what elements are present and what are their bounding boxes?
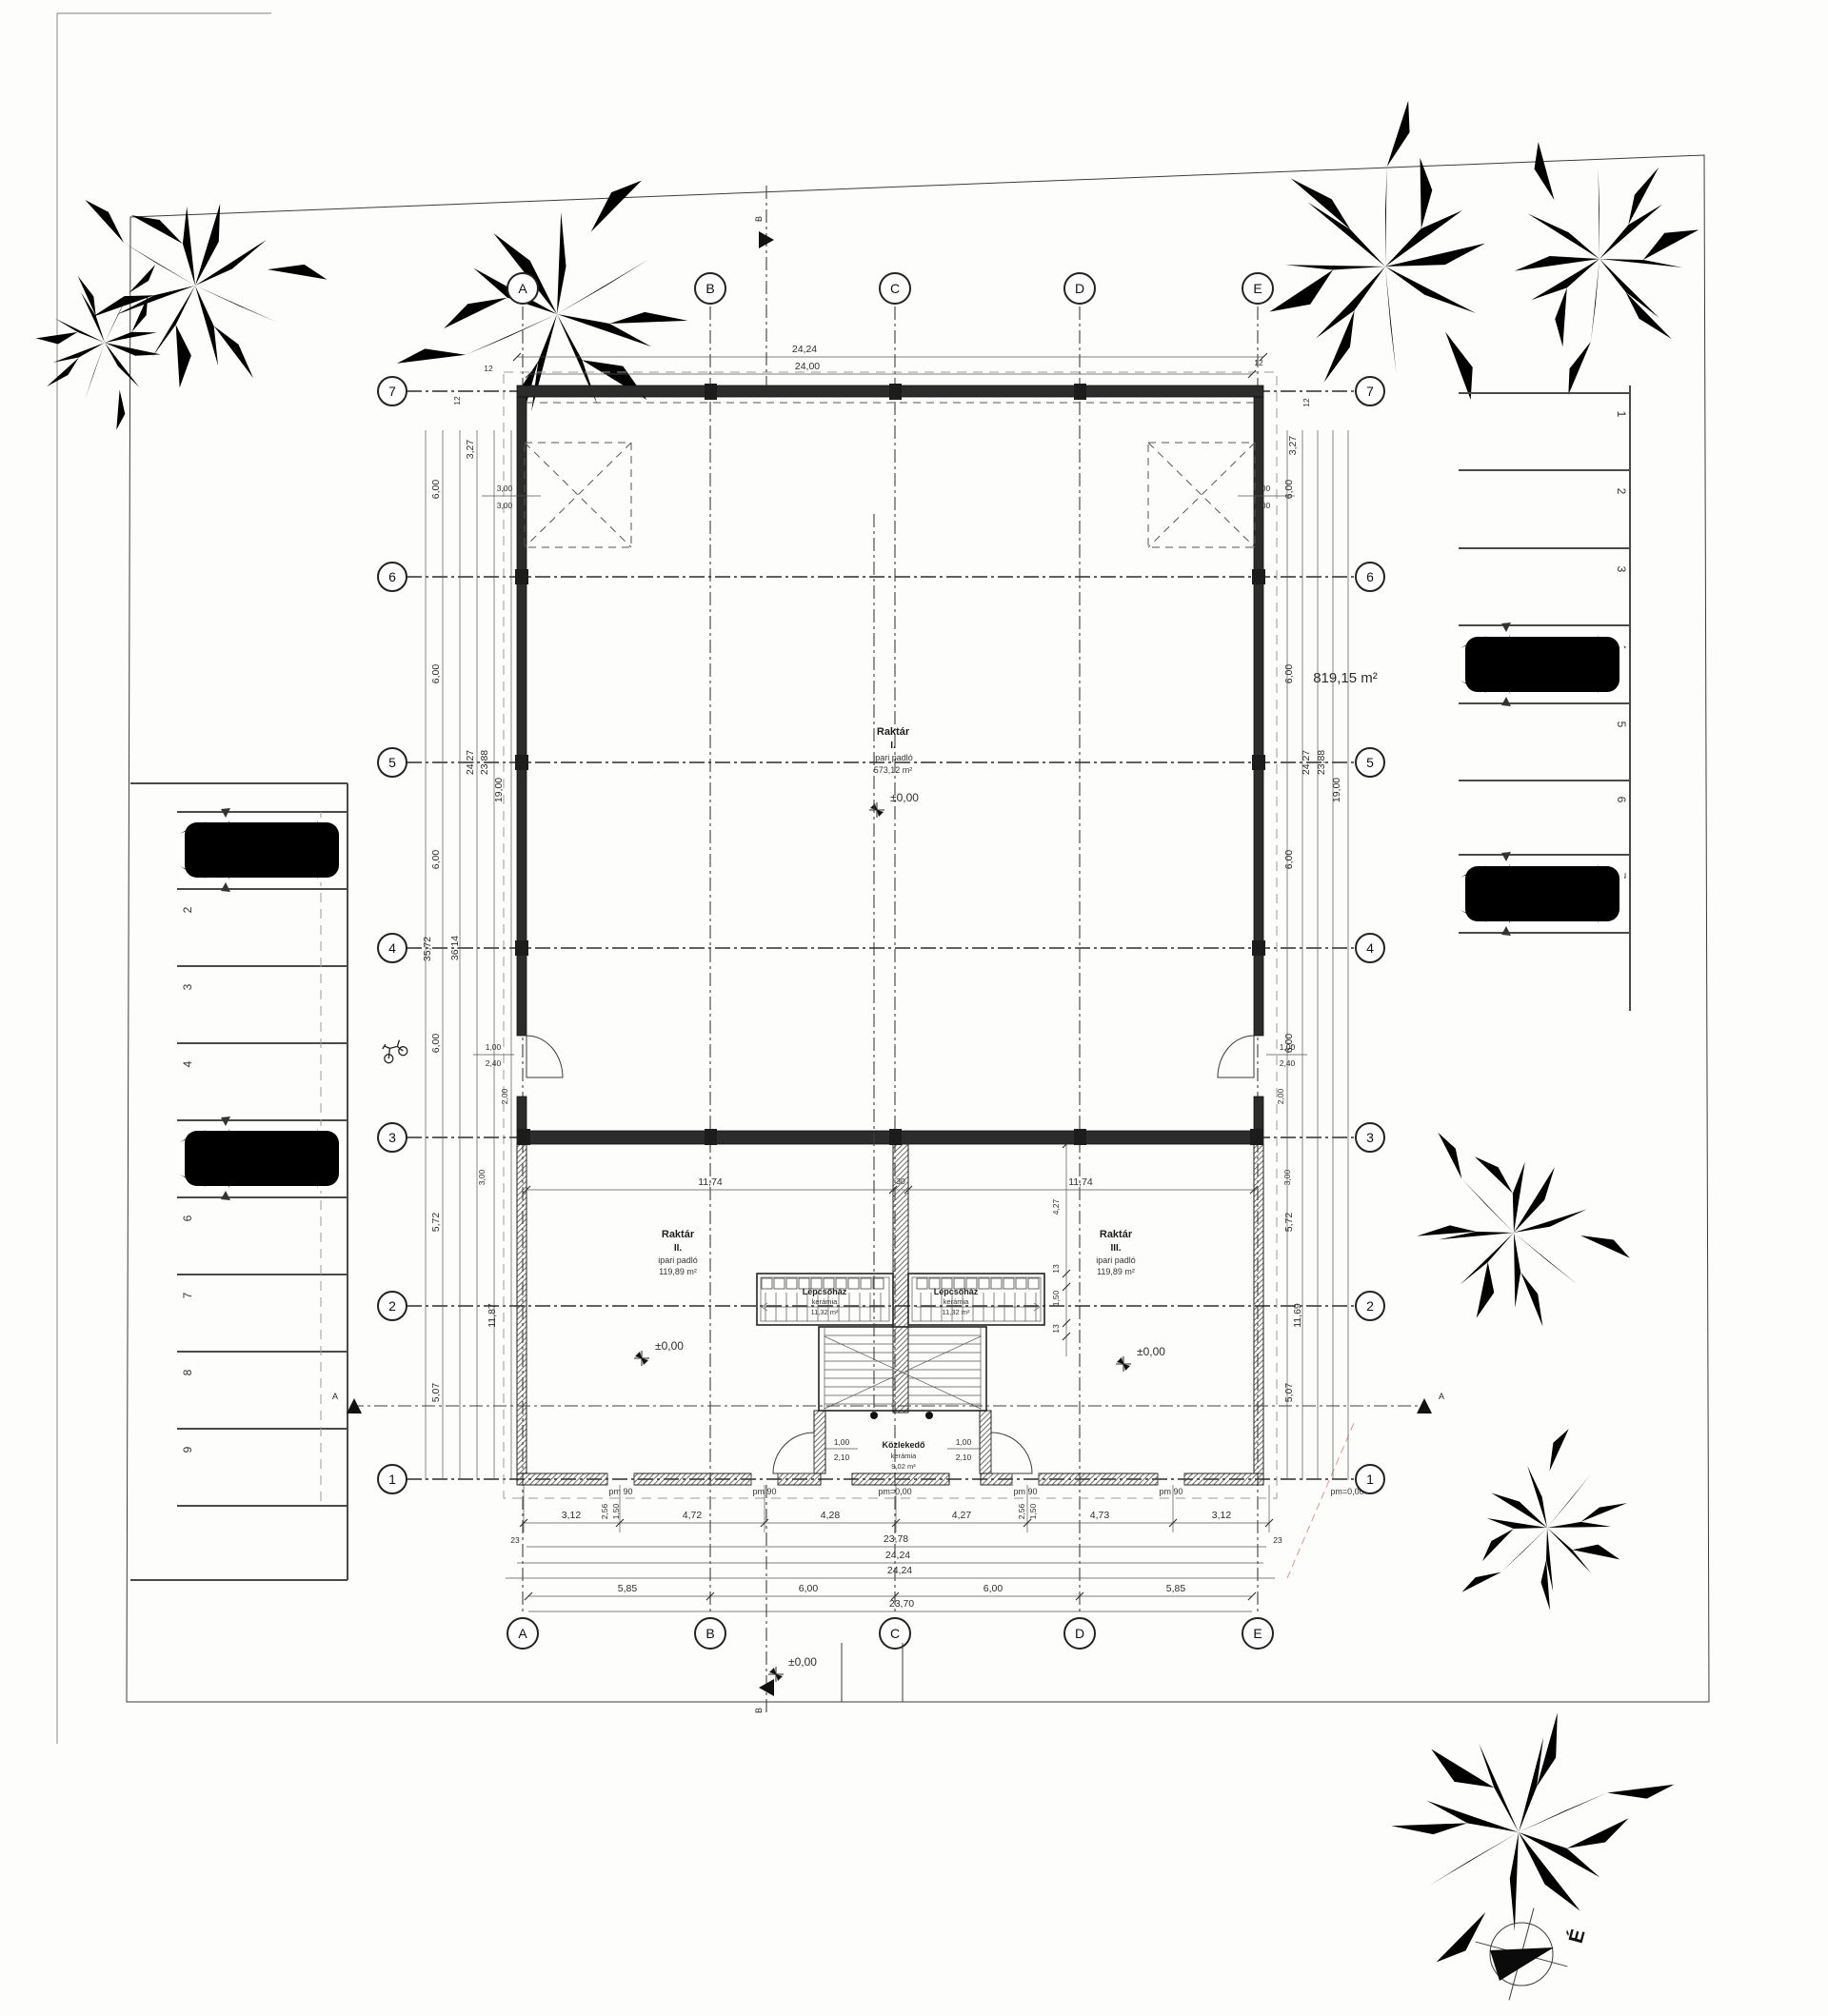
svg-text:4,72: 4,72: [683, 1510, 703, 1521]
svg-text:B: B: [754, 216, 764, 222]
svg-text:6,00: 6,00: [984, 1583, 1003, 1594]
room-finish: ipari padló: [1096, 1255, 1136, 1265]
svg-text:3,00: 3,00: [1255, 501, 1271, 510]
svg-text:2,56: 2,56: [1017, 1503, 1026, 1519]
parking-stall-number: 4: [181, 1060, 194, 1067]
svg-text:2: 2: [388, 1298, 396, 1314]
columns: [515, 384, 1265, 1145]
svg-text:36,14: 36,14: [449, 936, 461, 960]
tree-icon: [42, 142, 346, 425]
svg-text:A: A: [518, 281, 527, 296]
svg-text:pm 90: pm 90: [608, 1487, 632, 1496]
stair-area: 11,32 m²: [942, 1308, 970, 1316]
svg-text:5,07: 5,07: [1283, 1383, 1295, 1403]
entrance-walkway: [842, 1643, 903, 1702]
svg-text:6,00: 6,00: [430, 480, 442, 500]
level-label: ±0,00: [890, 791, 919, 804]
corridor-name: Közlekedő: [882, 1440, 925, 1450]
room-name: Raktár: [877, 726, 910, 738]
svg-text:23,70: 23,70: [889, 1598, 914, 1610]
level-label: ±0,00: [655, 1339, 684, 1353]
svg-text:2,10: 2,10: [834, 1453, 850, 1462]
svg-text:1,50: 1,50: [611, 1503, 621, 1519]
corridor-area: 9,02 m²: [891, 1462, 916, 1471]
svg-text:1,00: 1,00: [1280, 1042, 1296, 1052]
svg-text:23,78: 23,78: [884, 1533, 908, 1545]
svg-text:pm 90: pm 90: [1013, 1487, 1037, 1496]
stair-name: Lépcsőház: [803, 1287, 847, 1296]
svg-text:3: 3: [388, 1130, 396, 1145]
svg-text:2,40: 2,40: [1280, 1058, 1296, 1068]
building-walls: [515, 384, 1265, 1485]
svg-text:A: A: [332, 1392, 338, 1401]
room-finish: ipari padló: [658, 1255, 698, 1265]
svg-text:11,69: 11,69: [1292, 1303, 1303, 1328]
svg-text:30: 30: [896, 1176, 905, 1186]
car-icon: [1460, 852, 1624, 936]
svg-text:A: A: [518, 1626, 527, 1641]
level-marker-icon: [768, 1667, 784, 1682]
stair-core: [527, 1036, 1254, 1485]
site-area-label: 819,15 m²: [1313, 670, 1378, 686]
svg-text:E: E: [1253, 281, 1262, 296]
svg-text:11,74: 11,74: [1068, 1176, 1093, 1188]
svg-text:3,00: 3,00: [497, 484, 513, 493]
level-marker-icon: [1116, 1356, 1131, 1372]
parking-stall-number: 6: [181, 1215, 194, 1221]
svg-text:4: 4: [1366, 940, 1374, 956]
north-compass: É: [1463, 1896, 1590, 2012]
floor-plan-svg: 1 2 3 4 5 6 7 8 9 1 2 3 4 5 6 7 819,15 m…: [0, 0, 1828, 2016]
svg-text:6,00: 6,00: [799, 1583, 819, 1594]
svg-text:D: D: [1075, 281, 1084, 296]
svg-text:13: 13: [1051, 1264, 1061, 1274]
svg-text:6,00: 6,00: [1283, 850, 1295, 870]
svg-text:6: 6: [1366, 569, 1374, 584]
svg-text:1: 1: [1366, 1472, 1374, 1487]
svg-text:A: A: [1439, 1392, 1444, 1401]
car-icon: [1460, 623, 1624, 706]
room-number: II.: [674, 1243, 683, 1254]
svg-text:C: C: [890, 281, 900, 296]
svg-text:4,27: 4,27: [952, 1510, 972, 1521]
svg-text:11,87: 11,87: [487, 1303, 498, 1328]
svg-text:3: 3: [1366, 1130, 1374, 1145]
svg-text:1,00: 1,00: [834, 1437, 850, 1447]
svg-text:E: E: [1253, 1626, 1262, 1641]
svg-text:3,27: 3,27: [1287, 436, 1299, 456]
room-area: 119,89 m²: [1097, 1267, 1135, 1276]
tree-icon: [1422, 1400, 1670, 1655]
svg-text:24,00: 24,00: [795, 361, 820, 372]
svg-text:2,40: 2,40: [486, 1058, 502, 1068]
level-label: ±0,00: [1137, 1345, 1165, 1358]
grid-lines: [407, 306, 1355, 1615]
svg-text:1,50: 1,50: [1028, 1503, 1038, 1519]
svg-text:6,00: 6,00: [430, 1034, 442, 1054]
svg-text:3,27: 3,27: [465, 440, 476, 460]
svg-text:B: B: [705, 281, 714, 296]
svg-text:23: 23: [1273, 1535, 1282, 1545]
parking-stall-number: 7: [181, 1292, 194, 1298]
parking-stall-number: 3: [181, 983, 194, 990]
svg-text:11,74: 11,74: [698, 1176, 723, 1188]
parking-stall-number: 6: [1615, 797, 1628, 803]
svg-text:13: 13: [1051, 1324, 1061, 1334]
svg-text:2,56: 2,56: [600, 1503, 609, 1519]
svg-text:2,00: 2,00: [500, 1088, 509, 1104]
parking-stall-number: 1: [1615, 411, 1628, 418]
svg-text:4,28: 4,28: [821, 1510, 841, 1521]
svg-text:12: 12: [1301, 398, 1311, 407]
parking-stall-number: 5: [1615, 721, 1628, 728]
room-finish: ipari padló: [873, 753, 913, 762]
svg-text:4,73: 4,73: [1090, 1510, 1110, 1521]
svg-text:pm=0,00: pm=0,00: [878, 1487, 911, 1496]
svg-text:19,00: 19,00: [493, 778, 505, 802]
svg-text:3,00: 3,00: [477, 1169, 487, 1185]
svg-text:4,27: 4,27: [1051, 1198, 1061, 1215]
svg-text:3,12: 3,12: [1212, 1510, 1232, 1521]
car-icon: [180, 1117, 344, 1200]
svg-text:24,24: 24,24: [887, 1565, 912, 1576]
svg-text:5,85: 5,85: [618, 1583, 638, 1594]
svg-text:3,00: 3,00: [1282, 1169, 1292, 1185]
svg-text:23,88: 23,88: [479, 750, 490, 775]
svg-text:6,00: 6,00: [1283, 480, 1295, 500]
svg-text:5,85: 5,85: [1166, 1583, 1186, 1594]
svg-text:1,00: 1,00: [956, 1437, 972, 1447]
svg-text:3,00: 3,00: [497, 501, 513, 510]
room-area: 573,12 m²: [874, 765, 913, 775]
dimension-texts: 24,24 24,00 12 12 3,00 3,00 3,00 3,00 12…: [422, 344, 1342, 1610]
svg-text:23,88: 23,88: [1316, 750, 1327, 775]
svg-text:4: 4: [388, 940, 396, 956]
parking-left: 1 2 3 4 5 6 7 8 9: [130, 783, 348, 1580]
svg-text:1,00: 1,00: [486, 1042, 502, 1052]
svg-text:24,24: 24,24: [885, 1550, 910, 1561]
svg-text:5: 5: [1366, 755, 1374, 770]
tree-icon: [350, 112, 758, 516]
svg-text:23: 23: [510, 1535, 520, 1545]
svg-text:2,00: 2,00: [1276, 1088, 1285, 1104]
svg-text:6,00: 6,00: [430, 850, 442, 870]
corridor-finish: kerámia: [891, 1452, 918, 1460]
svg-text:pm 90: pm 90: [1159, 1487, 1182, 1496]
stair-finish: kerámia: [944, 1297, 970, 1306]
svg-text:D: D: [1075, 1626, 1084, 1641]
svg-text:5: 5: [388, 755, 396, 770]
svg-text:6: 6: [388, 569, 396, 584]
pm-labels: pm 90 pm 90 pm 90 pm 90 pm=0,00 pm=0,00: [608, 1487, 1363, 1496]
stair-finish: kerámia: [812, 1297, 839, 1306]
room-name: Raktár: [662, 1229, 695, 1240]
svg-text:24,27: 24,27: [465, 750, 476, 775]
floor-plan-page: 1 2 3 4 5 6 7 8 9 1 2 3 4 5 6 7 819,15 m…: [0, 0, 1828, 2016]
stair-name: Lépcsőház: [934, 1287, 979, 1296]
level-marker-icon: [869, 802, 884, 818]
parking-right: 1 2 3 4 5 6 7: [1459, 385, 1630, 1011]
room-area: 119,89 m²: [659, 1267, 697, 1276]
svg-text:35,72: 35,72: [422, 937, 433, 961]
svg-text:3,12: 3,12: [562, 1510, 582, 1521]
skylight-boxes: [525, 443, 1255, 547]
parking-stall-number: 9: [181, 1446, 194, 1453]
svg-text:B: B: [754, 1708, 764, 1713]
room-name: Raktár: [1100, 1229, 1133, 1240]
stair-area: 11,32 m²: [810, 1308, 839, 1316]
setback-line: [1287, 1423, 1354, 1578]
svg-text:12: 12: [484, 364, 493, 373]
parking-stall-number: 8: [181, 1369, 194, 1375]
svg-text:1: 1: [388, 1472, 396, 1487]
room-number: I.: [890, 741, 896, 751]
level-marker-icon: [634, 1351, 649, 1366]
svg-text:2: 2: [1366, 1298, 1374, 1314]
svg-text:19,00: 19,00: [1331, 778, 1342, 802]
svg-text:1,50: 1,50: [1051, 1290, 1061, 1306]
parking-stall-number: 2: [1615, 488, 1628, 495]
room-number: III.: [1110, 1243, 1121, 1254]
tree-icon: [1216, 82, 1557, 446]
dimension-lines: [426, 353, 1348, 1611]
svg-text:C: C: [890, 1626, 900, 1641]
svg-text:5,07: 5,07: [430, 1383, 442, 1403]
svg-text:B: B: [705, 1626, 714, 1641]
svg-text:24,27: 24,27: [1301, 750, 1312, 775]
svg-text:12: 12: [1254, 358, 1263, 367]
svg-text:5,72: 5,72: [430, 1213, 442, 1233]
roof-outline-dashed: [504, 372, 1277, 1498]
svg-text:12: 12: [452, 396, 462, 405]
parking-stall-number: 2: [181, 906, 194, 913]
parking-stall-number: 3: [1615, 566, 1628, 573]
svg-text:6,00: 6,00: [430, 664, 442, 684]
motorcycle-icon: [378, 1037, 408, 1064]
svg-text:7: 7: [1366, 384, 1374, 399]
svg-text:5,72: 5,72: [1283, 1213, 1295, 1233]
svg-text:3,00: 3,00: [1255, 484, 1271, 493]
svg-text:6,00: 6,00: [1283, 664, 1295, 684]
svg-text:7: 7: [388, 384, 396, 399]
svg-text:2,10: 2,10: [956, 1453, 972, 1462]
tree-icon: [17, 246, 195, 439]
north-label: É: [1565, 1927, 1590, 1946]
car-icon: [180, 808, 344, 892]
grid-bubble-labels: A B C D E A B C D E 7 6 5 4 3 2 1 7 6 5 …: [388, 281, 1374, 1641]
svg-text:24,24: 24,24: [792, 344, 817, 355]
level-label: ±0,00: [788, 1655, 817, 1669]
tree-icon: [1363, 1086, 1663, 1376]
